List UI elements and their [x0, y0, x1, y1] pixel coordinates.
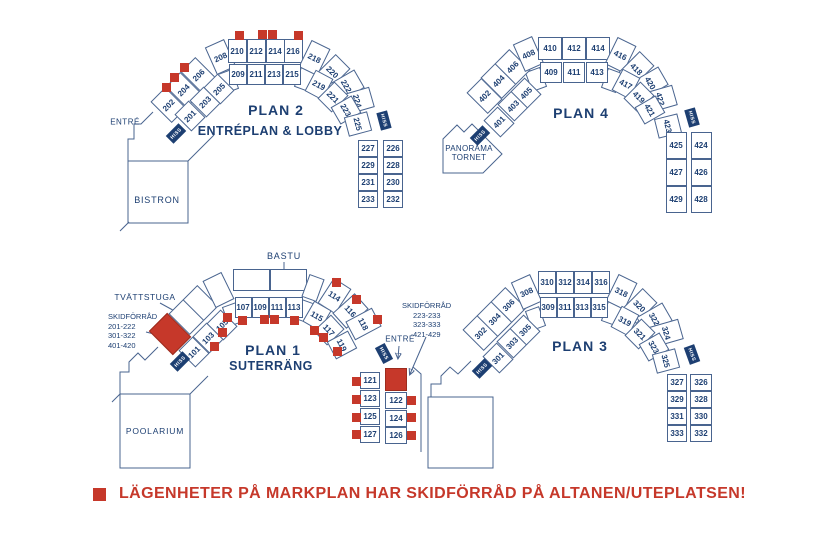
- ski-storage-right-range-2: 323-333: [413, 320, 451, 330]
- room-314: 314: [574, 271, 592, 294]
- room-number: 301: [490, 350, 506, 366]
- bistron-door-tick: [120, 222, 129, 231]
- room-number: 414: [591, 44, 604, 53]
- ski-storage-marker: [407, 431, 416, 440]
- room-329: 329: [667, 391, 687, 408]
- room-229: 229: [358, 157, 378, 174]
- room-424: 424: [691, 132, 712, 159]
- ski-storage-room: [385, 368, 407, 391]
- room-number: 327: [670, 378, 683, 387]
- plan1-title: PLAN 1: [245, 342, 301, 358]
- room-number: 318: [613, 285, 629, 299]
- ski-storage-left-title: SKIDFÖRRÅD: [108, 312, 157, 322]
- entre-plan1-arrow: [398, 346, 399, 358]
- room-122: 122: [385, 392, 407, 409]
- room-209: 209: [229, 64, 247, 85]
- room-number: 114: [326, 289, 342, 304]
- entrance-label-plan1: ENTRÉ: [385, 335, 415, 344]
- poolarium-label: POOLARIUM: [126, 426, 184, 436]
- floor-plan-canvas: ENTRÉ BISTRON PLAN 2 ENTRÉPLAN & LOBBY P…: [0, 0, 831, 555]
- room-number: 310: [540, 278, 553, 287]
- room-316: 316: [592, 271, 610, 294]
- room-number: 409: [544, 68, 557, 77]
- room-number: 313: [575, 303, 588, 312]
- room-number: 233: [361, 195, 374, 204]
- room-212: 212: [247, 39, 266, 63]
- room-113: 113: [286, 297, 303, 318]
- room-215: 215: [283, 64, 301, 85]
- ski-storage-marker: [310, 326, 319, 335]
- room-number: 212: [249, 47, 262, 56]
- ski-storage-marker: [352, 377, 361, 386]
- room-313: 313: [574, 297, 591, 318]
- ski-storage-marker: [352, 395, 361, 404]
- room-228: 228: [383, 157, 403, 174]
- ski-storage-marker: [407, 413, 416, 422]
- room-number: 215: [285, 70, 298, 79]
- ski-storage-right-range-3: 421-429: [413, 330, 451, 340]
- room-number: 425: [669, 141, 682, 150]
- room-331: 331: [667, 408, 687, 425]
- ski-storage-marker: [260, 315, 269, 324]
- room-213: 213: [265, 64, 283, 85]
- ski-storage-marker: [170, 73, 179, 82]
- ski-storage-marker: [332, 278, 341, 287]
- ski-storage-marker: [180, 63, 189, 72]
- room-410: 410: [538, 37, 562, 60]
- room-number: 412: [567, 44, 580, 53]
- room-number: 231: [361, 178, 374, 187]
- room-426: 426: [691, 159, 712, 186]
- room-number: 319: [617, 314, 633, 328]
- room-number: 118: [356, 316, 370, 332]
- room-327: 327: [667, 374, 687, 391]
- room-number: 127: [363, 430, 376, 439]
- room-309: 309: [540, 297, 557, 318]
- room-number: 126: [389, 431, 402, 440]
- ski-storage-marker: [223, 313, 232, 322]
- ski-storage-marker: [290, 316, 299, 325]
- room-number: 205: [211, 81, 227, 97]
- room-126: 126: [385, 427, 407, 444]
- ski-storage-marker: [407, 396, 416, 405]
- hiss-label: HISS: [687, 110, 697, 125]
- room-211: 211: [247, 64, 265, 85]
- room-number: 421: [643, 102, 657, 118]
- room-number: 213: [267, 70, 280, 79]
- plan1-door-tick: [112, 394, 120, 402]
- room-326: 326: [690, 374, 712, 391]
- plan1-pool-connector: [190, 376, 208, 394]
- room-310: 310: [538, 271, 556, 294]
- room-number: 122: [389, 396, 402, 405]
- room-number: 406: [504, 59, 520, 75]
- room-number: 203: [197, 94, 213, 110]
- room-number: 226: [386, 144, 399, 153]
- room-number: 227: [361, 144, 374, 153]
- room-427: 427: [666, 159, 687, 186]
- room-number: 230: [386, 178, 399, 187]
- plan2-subtitle: ENTRÉPLAN & LOBBY: [198, 124, 343, 138]
- ski-storage-marker: [235, 31, 244, 40]
- room-428: 428: [691, 186, 712, 213]
- room-429: 429: [666, 186, 687, 213]
- room-number: 326: [694, 378, 707, 387]
- ski-storage-marker: [373, 315, 382, 324]
- plan2-connector-wall: [188, 135, 214, 161]
- room-328: 328: [690, 391, 712, 408]
- room-number: 214: [268, 47, 281, 56]
- room-number: 330: [694, 412, 707, 421]
- room-414: 414: [586, 37, 610, 60]
- ski-storage-marker: [333, 347, 342, 356]
- hiss-label: HISS: [379, 113, 388, 128]
- ski-storage-marker: [218, 328, 227, 337]
- room-412: 412: [562, 37, 586, 60]
- room-number: 402: [476, 88, 492, 104]
- room-number: 218: [306, 51, 322, 65]
- room-233: 233: [358, 191, 378, 208]
- bastu-room: [270, 269, 307, 291]
- room-number: 109: [253, 303, 266, 312]
- ski-storage-right-range-1: 223-233: [413, 311, 451, 321]
- room-number: 331: [670, 412, 683, 421]
- room-number: 329: [670, 395, 683, 404]
- room-number: 312: [558, 278, 571, 287]
- room-number: 210: [230, 47, 243, 56]
- ski-storage-marker: [258, 30, 267, 39]
- ski-storage-marker: [352, 295, 361, 304]
- ski-storage-left-range-3: 401-420: [108, 341, 157, 351]
- room-number: 208: [212, 50, 228, 64]
- room-number: 124: [389, 414, 402, 423]
- ski-storage-marker: [162, 83, 171, 92]
- room-number: 305: [517, 322, 533, 338]
- plan3-title: PLAN 3: [552, 338, 608, 354]
- bastu-room: [233, 269, 270, 291]
- plan2-title: PLAN 2: [248, 102, 304, 118]
- room-number: 308: [518, 285, 534, 299]
- room-330: 330: [690, 408, 712, 425]
- plan3-entrance-steps: [431, 361, 471, 397]
- room-number: 333: [670, 429, 683, 438]
- room-232: 232: [383, 191, 403, 208]
- room-number: 314: [576, 278, 589, 287]
- room-number: 302: [472, 325, 488, 341]
- room-number: 332: [694, 429, 707, 438]
- room-number: 429: [669, 195, 682, 204]
- room-number: 206: [190, 67, 206, 83]
- ski-storage-marker: [268, 30, 277, 39]
- room-number: 304: [486, 311, 502, 327]
- room-number: 229: [361, 161, 374, 170]
- room-number: 410: [543, 44, 556, 53]
- room-number: 427: [669, 168, 682, 177]
- room-125: 125: [360, 408, 380, 425]
- ski-storage-marker: [210, 342, 219, 351]
- room-number: 113: [288, 303, 301, 312]
- plan1-left-terrace-wall: [120, 347, 158, 394]
- room-number: 325: [660, 353, 672, 368]
- room-number: 405: [518, 85, 534, 101]
- room-number: 125: [363, 412, 376, 421]
- room-127: 127: [360, 426, 380, 443]
- room-332: 332: [690, 425, 712, 442]
- room-214: 214: [266, 39, 285, 63]
- room-number: 211: [250, 70, 263, 79]
- ski-storage-marker: [294, 31, 303, 40]
- room-226: 226: [383, 140, 403, 157]
- panorama-tower-label: PANORAMA TORNET: [436, 144, 502, 162]
- room-312: 312: [556, 271, 574, 294]
- room-number: 328: [694, 395, 707, 404]
- room-number: 413: [590, 68, 603, 77]
- room-number: 123: [363, 394, 376, 403]
- room-230: 230: [383, 174, 403, 191]
- room-227: 227: [358, 140, 378, 157]
- room-216: 216: [284, 39, 303, 63]
- room-number: 202: [160, 97, 176, 113]
- bistron-label: BISTRON: [134, 195, 180, 205]
- room-number: 428: [694, 195, 707, 204]
- room-number: 209: [231, 70, 244, 79]
- room-number: 316: [594, 278, 607, 287]
- room-107: 107: [235, 297, 252, 318]
- room-number: 111: [271, 303, 283, 312]
- room-number: 424: [694, 141, 707, 150]
- room-number: 121: [363, 376, 376, 385]
- room-number: 309: [541, 303, 554, 312]
- room-number: 408: [520, 47, 536, 61]
- legend: LÄGENHETER PÅ MARKPLAN HAR SKIDFÖRRÅD PÅ…: [93, 485, 746, 503]
- room-number: 201: [182, 108, 198, 124]
- plan3-annex-outline: [428, 397, 493, 468]
- room-333: 333: [667, 425, 687, 442]
- plan4-title: PLAN 4: [553, 105, 609, 121]
- hiss-label: HISS: [687, 347, 697, 362]
- ski-storage-right-title: SKIDFÖRRÅD: [402, 301, 451, 311]
- bistron-outline: [128, 161, 188, 223]
- room-311: 311: [557, 297, 574, 318]
- room-number: 411: [568, 68, 581, 77]
- room-210: 210: [228, 39, 247, 63]
- ski-storage-marker: [270, 315, 279, 324]
- room-413: 413: [586, 62, 608, 83]
- room-number: 311: [559, 303, 572, 312]
- ski-storage-marker: [319, 333, 328, 342]
- room-number: 228: [386, 161, 399, 170]
- ski-storage-marker: [238, 316, 247, 325]
- bastu-label: BASTU: [267, 251, 301, 261]
- room-231: 231: [358, 174, 378, 191]
- room-number: 204: [175, 82, 191, 98]
- room-number: 107: [236, 303, 249, 312]
- room-number: 404: [490, 73, 506, 89]
- ski-storage-legend-marker: [93, 488, 106, 501]
- room-number: 225: [352, 116, 364, 131]
- room-number: 426: [694, 168, 707, 177]
- room-411: 411: [563, 62, 585, 83]
- ski-storage-label-right: SKIDFÖRRÅD 223-233 323-333 421-429: [402, 301, 451, 339]
- room-number: 401: [491, 114, 507, 130]
- room-124: 124: [385, 410, 407, 427]
- room-number: 315: [592, 303, 605, 312]
- room-number: 232: [386, 195, 399, 204]
- room-number: 306: [500, 297, 516, 313]
- ski-storage-marker: [352, 430, 361, 439]
- room-315: 315: [591, 297, 608, 318]
- plan1-subtitle: SUTERRÄNG: [229, 359, 313, 373]
- tvattstuga-label: TVÄTTSTUGA: [114, 292, 175, 302]
- room-number: 416: [612, 48, 628, 62]
- room-123: 123: [360, 390, 380, 407]
- room-number: 216: [286, 47, 299, 56]
- entrance-label-plan2: ENTRÉ: [110, 118, 140, 127]
- ski-storage-marker: [352, 413, 361, 422]
- building-outlines: [0, 0, 831, 555]
- room-121: 121: [360, 372, 380, 389]
- legend-text: LÄGENHETER PÅ MARKPLAN HAR SKIDFÖRRÅD PÅ…: [119, 485, 746, 503]
- room-409: 409: [540, 62, 562, 83]
- room-425: 425: [666, 132, 687, 159]
